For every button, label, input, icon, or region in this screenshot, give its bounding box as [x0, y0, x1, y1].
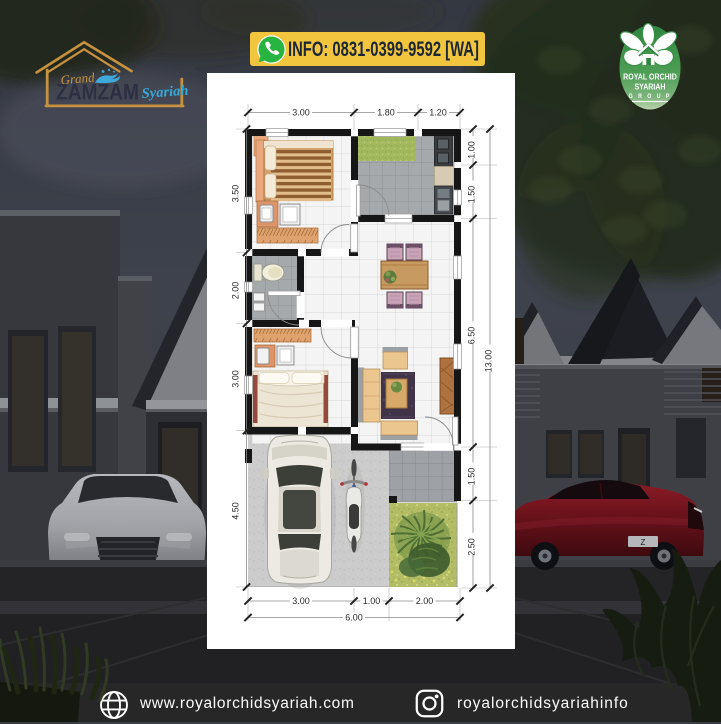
svg-text:4.50: 4.50 [231, 502, 241, 520]
svg-text:1.80: 1.80 [377, 108, 395, 118]
svg-text:1.00: 1.00 [467, 141, 477, 159]
svg-text:3.00: 3.00 [231, 370, 241, 388]
svg-text:6.50: 6.50 [467, 327, 477, 345]
svg-text:3.50: 3.50 [231, 185, 241, 203]
svg-text:1.50: 1.50 [467, 468, 477, 486]
svg-text:3.00: 3.00 [292, 108, 310, 118]
svg-text:SYARIAH: SYARIAH [634, 82, 665, 92]
svg-text:1.50: 1.50 [467, 186, 477, 204]
svg-text:G R O U P: G R O U P [629, 93, 672, 100]
svg-text:ZAMZAM: ZAMZAM [56, 80, 139, 105]
svg-text:Syariah: Syariah [141, 83, 189, 102]
svg-text:ROYAL ORCHID: ROYAL ORCHID [623, 72, 677, 82]
svg-text:1.20: 1.20 [429, 108, 447, 118]
svg-text:13.00: 13.00 [484, 350, 494, 373]
svg-text:2.00: 2.00 [231, 282, 241, 300]
